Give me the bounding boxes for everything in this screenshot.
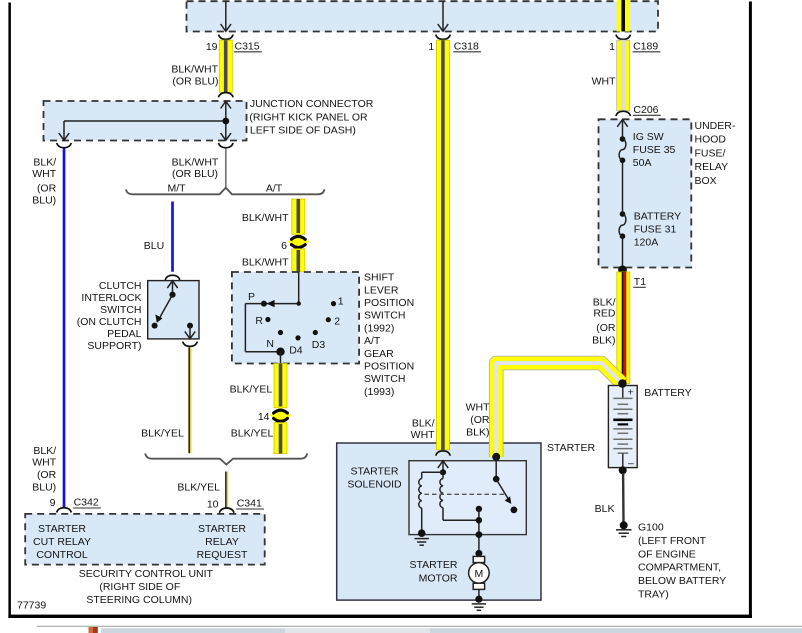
svg-text:WHT: WHT: [32, 168, 56, 180]
svg-text:GEAR: GEAR: [364, 348, 394, 360]
svg-text:BLU): BLU): [32, 195, 56, 207]
svg-text:FUSE/: FUSE/: [695, 147, 726, 159]
svg-text:(OR: (OR: [37, 469, 57, 481]
svg-text:FUSE 35: FUSE 35: [633, 144, 676, 156]
svg-text:(OR: (OR: [37, 183, 57, 195]
svg-text:G100: G100: [638, 522, 664, 534]
svg-text:–: –: [628, 458, 634, 470]
svg-text:(LEFT FRONT: (LEFT FRONT: [638, 535, 707, 547]
svg-text:CUT RELAY: CUT RELAY: [33, 536, 91, 548]
svg-text:(1993): (1993): [364, 386, 394, 398]
svg-text:1: 1: [609, 41, 615, 53]
svg-text:BELOW BATTERY: BELOW BATTERY: [638, 575, 726, 587]
svg-text:(OR: (OR: [596, 322, 616, 334]
svg-text:FUSE 31: FUSE 31: [634, 223, 677, 235]
svg-text:POSITION: POSITION: [364, 361, 414, 373]
svg-text:STARTER: STARTER: [409, 559, 457, 571]
svg-text:LEVER: LEVER: [364, 284, 399, 296]
svg-text:SUPPORT): SUPPORT): [87, 340, 141, 352]
svg-text:SECURITY CONTROL UNIT: SECURITY CONTROL UNIT: [79, 568, 214, 580]
svg-text:BLK/YEL: BLK/YEL: [141, 427, 184, 439]
svg-text:6: 6: [281, 240, 287, 252]
svg-text:BOX: BOX: [695, 175, 717, 187]
svg-text:STARTER: STARTER: [350, 465, 398, 477]
svg-text:CLUTCH: CLUTCH: [99, 280, 142, 292]
svg-text:REQUEST: REQUEST: [197, 549, 248, 561]
svg-text:77739: 77739: [17, 600, 46, 612]
svg-text:T1: T1: [634, 276, 646, 288]
svg-text:SHIFT: SHIFT: [364, 272, 395, 284]
svg-text:COMPARTMENT,: COMPARTMENT,: [638, 562, 721, 574]
svg-text:SWITCH: SWITCH: [364, 373, 405, 385]
svg-text:10: 10: [207, 499, 219, 511]
svg-text:BLK/YEL: BLK/YEL: [231, 427, 274, 439]
svg-text:BLK/WHT: BLK/WHT: [172, 156, 219, 168]
svg-text:BLK/: BLK/: [412, 418, 435, 430]
svg-text:BLK): BLK): [466, 426, 489, 438]
svg-text:1: 1: [338, 296, 344, 308]
svg-text:50A: 50A: [633, 157, 652, 169]
svg-text:D3: D3: [312, 339, 326, 351]
svg-text:C206: C206: [633, 104, 658, 116]
svg-text:2: 2: [334, 316, 340, 328]
svg-text:(ON CLUTCH: (ON CLUTCH: [77, 316, 142, 328]
svg-text:RELAY: RELAY: [205, 536, 239, 548]
svg-text:D4: D4: [289, 345, 303, 357]
svg-text:HOOD: HOOD: [695, 134, 727, 146]
svg-text:INTERLOCK: INTERLOCK: [81, 292, 141, 304]
svg-text:19: 19: [206, 41, 218, 53]
svg-text:9: 9: [50, 497, 56, 509]
svg-text:BLK/YEL: BLK/YEL: [177, 482, 220, 494]
svg-text:14: 14: [258, 411, 270, 423]
svg-text:RED: RED: [593, 307, 616, 319]
svg-text:STEERING COLUMN): STEERING COLUMN): [86, 594, 192, 606]
svg-text:(RIGHT KICK PANEL OR: (RIGHT KICK PANEL OR: [249, 111, 368, 123]
svg-text:BLK/: BLK/: [33, 157, 56, 169]
svg-text:JUNCTION CONNECTOR: JUNCTION CONNECTOR: [250, 98, 374, 110]
svg-text:LEFT SIDE OF DASH): LEFT SIDE OF DASH): [250, 124, 356, 136]
svg-text:N: N: [266, 338, 274, 350]
svg-text:BATTERY: BATTERY: [644, 387, 691, 399]
svg-text:(OR BLU): (OR BLU): [172, 168, 218, 180]
svg-text:+: +: [628, 387, 634, 399]
svg-text:A/T: A/T: [266, 182, 283, 194]
svg-text:RELAY: RELAY: [695, 161, 729, 173]
svg-text:C318: C318: [454, 40, 479, 52]
svg-text:STARTER: STARTER: [547, 442, 595, 454]
svg-text:IG SW: IG SW: [633, 131, 664, 143]
svg-text:C315: C315: [235, 40, 260, 52]
svg-text:BLK: BLK: [595, 503, 615, 515]
svg-text:WHT: WHT: [411, 429, 435, 441]
svg-text:SWITCH: SWITCH: [100, 304, 141, 316]
svg-text:TRAY): TRAY): [638, 589, 669, 601]
svg-text:(OR: (OR: [470, 414, 490, 426]
svg-text:(OR BLU): (OR BLU): [172, 76, 218, 88]
svg-text:UNDER-: UNDER-: [695, 120, 736, 132]
svg-text:C189: C189: [633, 40, 658, 52]
svg-text:STARTER: STARTER: [38, 523, 86, 535]
svg-text:BLK/WHT: BLK/WHT: [242, 212, 289, 224]
svg-text:POSITION: POSITION: [364, 297, 414, 309]
svg-text:STARTER: STARTER: [198, 523, 246, 535]
svg-text:PEDAL: PEDAL: [107, 328, 142, 340]
svg-text:WHT: WHT: [32, 456, 56, 468]
svg-text:BLK/: BLK/: [33, 445, 56, 457]
svg-text:WHT: WHT: [592, 76, 616, 88]
svg-text:(RIGHT SIDE OF: (RIGHT SIDE OF: [99, 581, 180, 593]
svg-text:BLU: BLU: [144, 240, 164, 252]
svg-text:120A: 120A: [634, 236, 659, 248]
svg-text:OF ENGINE: OF ENGINE: [638, 548, 696, 560]
svg-text:SOLENOID: SOLENOID: [347, 478, 402, 490]
svg-text:BLK/YEL: BLK/YEL: [230, 384, 273, 396]
svg-text:R: R: [255, 315, 263, 327]
svg-text:C341: C341: [237, 498, 262, 510]
svg-text:P: P: [248, 291, 255, 303]
svg-text:C342: C342: [74, 497, 99, 509]
svg-text:WHT: WHT: [466, 401, 490, 413]
svg-text:BLK/WHT: BLK/WHT: [171, 64, 218, 76]
svg-text:(1992): (1992): [364, 322, 394, 334]
svg-text:M: M: [475, 568, 484, 580]
svg-text:1: 1: [428, 41, 434, 53]
svg-text:M/T: M/T: [167, 182, 186, 194]
svg-text:A/T: A/T: [364, 335, 381, 347]
svg-text:BLU): BLU): [32, 481, 56, 493]
svg-text:MOTOR: MOTOR: [419, 573, 458, 585]
svg-text:BLK): BLK): [592, 334, 615, 346]
svg-text:SWITCH: SWITCH: [364, 310, 405, 322]
svg-text:CONTROL: CONTROL: [36, 549, 87, 561]
svg-text:BATTERY: BATTERY: [634, 210, 681, 222]
svg-text:BLK/WHT: BLK/WHT: [242, 257, 289, 269]
